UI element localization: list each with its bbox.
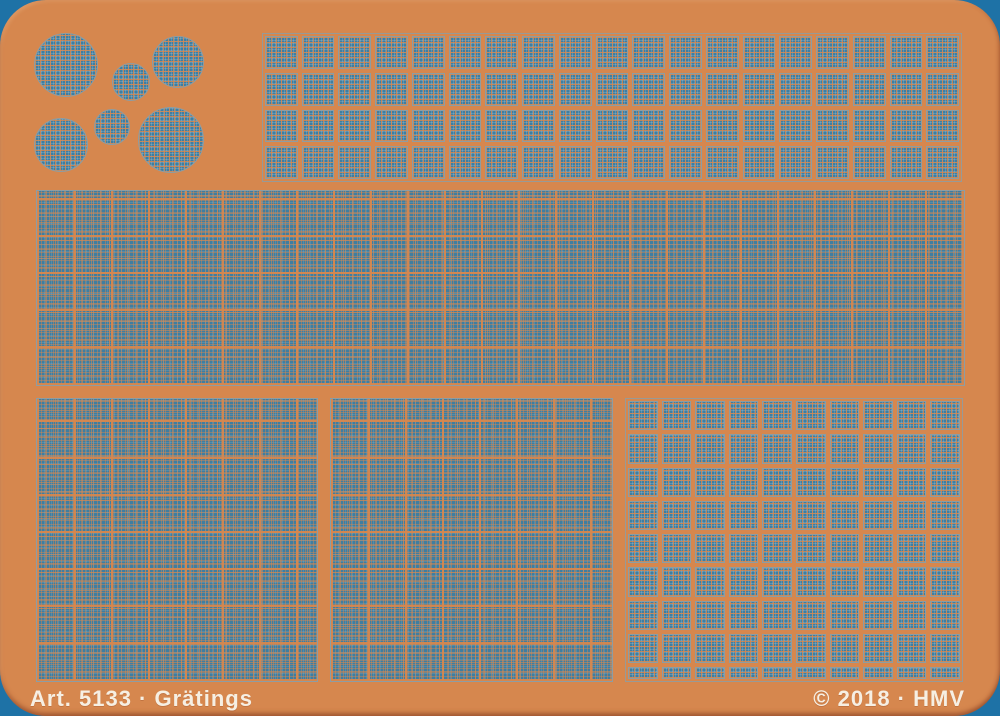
grating-cell xyxy=(816,73,849,106)
grating-cell xyxy=(662,634,692,663)
grating-cell xyxy=(796,534,826,563)
grating-cell xyxy=(863,601,893,630)
grating-cell xyxy=(897,634,927,663)
grating-cell xyxy=(662,667,692,679)
grating-cell xyxy=(762,401,792,430)
grating-cell xyxy=(762,501,792,530)
grating-cell xyxy=(930,667,960,679)
grating-cell xyxy=(830,667,860,679)
grating-cell xyxy=(302,110,335,143)
grating-cell xyxy=(596,110,629,143)
grating-cell xyxy=(853,73,886,106)
grating-cell xyxy=(863,434,893,463)
grating-cell xyxy=(695,667,725,679)
grating-cell xyxy=(890,110,923,143)
grating-cell xyxy=(662,567,692,596)
grating-cell xyxy=(695,501,725,530)
grating-cell xyxy=(662,401,692,430)
grating-cell xyxy=(779,73,812,106)
circular-grating xyxy=(138,107,204,173)
grating-cell xyxy=(816,110,849,143)
grating-cell xyxy=(522,36,555,69)
grating-cell xyxy=(816,146,849,179)
grating-cell xyxy=(338,36,371,69)
circular-grating xyxy=(34,118,88,172)
grating-cell xyxy=(853,146,886,179)
grating-cell xyxy=(375,36,408,69)
grating-cell xyxy=(669,36,702,69)
grating-cell xyxy=(522,73,555,106)
grating-cell xyxy=(302,146,335,179)
grating-cell xyxy=(669,110,702,143)
grating-cell xyxy=(762,634,792,663)
grating-cell xyxy=(706,36,739,69)
grating-cell xyxy=(695,534,725,563)
grating-cell xyxy=(662,434,692,463)
grating-cell xyxy=(412,36,445,69)
grating-cell xyxy=(559,36,592,69)
grating-cell xyxy=(762,534,792,563)
grating-cell xyxy=(897,501,927,530)
grating-cell xyxy=(890,73,923,106)
grating-cell xyxy=(695,601,725,630)
article-number-label: Art. 5133 · Grätings xyxy=(30,686,253,712)
grating-cell xyxy=(930,601,960,630)
grating-cell xyxy=(662,601,692,630)
grating-cell xyxy=(863,534,893,563)
grating-cell xyxy=(522,146,555,179)
grating-cell xyxy=(897,401,927,430)
grating-cell xyxy=(375,73,408,106)
grating-cell xyxy=(830,634,860,663)
grating-cell xyxy=(628,567,658,596)
grating-cell xyxy=(762,667,792,679)
grating-cell xyxy=(695,567,725,596)
grating-cell xyxy=(596,73,629,106)
grating-cell xyxy=(796,468,826,497)
grating-cell xyxy=(863,501,893,530)
grating-cell xyxy=(449,110,482,143)
grating-cell xyxy=(853,36,886,69)
grating-cell xyxy=(449,73,482,106)
grating-cell xyxy=(375,110,408,143)
grating-cell xyxy=(897,468,927,497)
circular-grating xyxy=(94,109,130,145)
grating-cell xyxy=(729,634,759,663)
grating-cell xyxy=(559,73,592,106)
circular-grating xyxy=(112,63,150,101)
grating-cell xyxy=(632,73,665,106)
grating-cell xyxy=(338,73,371,106)
grating-cell xyxy=(485,146,518,179)
grating-cell xyxy=(412,73,445,106)
grating-cell xyxy=(628,634,658,663)
grating-cell xyxy=(338,110,371,143)
grating-cell xyxy=(796,401,826,430)
grating-cell xyxy=(930,468,960,497)
grating-cell xyxy=(897,601,927,630)
grating-cell xyxy=(762,468,792,497)
etch-fret-sheet: Art. 5133 · Grätings © 2018 · HMV xyxy=(0,0,1000,716)
grating-cell xyxy=(897,667,927,679)
grating-cell xyxy=(796,667,826,679)
grating-cell xyxy=(930,501,960,530)
grating-cell xyxy=(706,73,739,106)
grating-cell xyxy=(897,434,927,463)
grating-cell xyxy=(796,634,826,663)
bottom-right-grating-grid xyxy=(625,398,963,682)
grating-cell xyxy=(796,567,826,596)
grating-cell xyxy=(449,36,482,69)
grating-cell xyxy=(302,36,335,69)
grating-cell xyxy=(796,601,826,630)
grating-cell xyxy=(926,110,959,143)
grating-cell xyxy=(632,110,665,143)
grating-cell xyxy=(743,73,776,106)
grating-cell xyxy=(926,146,959,179)
grating-cell xyxy=(830,434,860,463)
copyright-label: © 2018 · HMV xyxy=(813,686,965,712)
photoetch-sheet-image: Art. 5133 · Grätings © 2018 · HMV xyxy=(0,0,1000,716)
grating-cell xyxy=(662,501,692,530)
grating-cell xyxy=(729,501,759,530)
grating-cell xyxy=(743,36,776,69)
grating-cell xyxy=(897,534,927,563)
grating-cell xyxy=(695,434,725,463)
grating-cell xyxy=(669,146,702,179)
grating-cell xyxy=(302,73,335,106)
grating-cell xyxy=(559,110,592,143)
grating-cell xyxy=(522,110,555,143)
grating-cell xyxy=(930,567,960,596)
grating-cell xyxy=(559,146,592,179)
grating-cell xyxy=(628,601,658,630)
grating-cell xyxy=(662,468,692,497)
grating-cell xyxy=(729,667,759,679)
grating-cell xyxy=(449,146,482,179)
circular-grating xyxy=(152,36,204,88)
grating-cell xyxy=(729,534,759,563)
grating-cell xyxy=(706,146,739,179)
grating-cell xyxy=(338,146,371,179)
grating-cell xyxy=(779,146,812,179)
grating-cell xyxy=(596,146,629,179)
grating-cell xyxy=(863,468,893,497)
grating-cell xyxy=(412,110,445,143)
grating-cell xyxy=(628,468,658,497)
bottom-left-grating-panel xyxy=(36,398,318,682)
grating-cell xyxy=(816,36,849,69)
grating-cell xyxy=(628,667,658,679)
grating-cell xyxy=(743,110,776,143)
grating-cell xyxy=(265,36,298,69)
grating-cell xyxy=(662,534,692,563)
grating-cell xyxy=(779,110,812,143)
grating-cell xyxy=(628,501,658,530)
grating-cell xyxy=(743,146,776,179)
grating-cell xyxy=(632,146,665,179)
grating-cell xyxy=(830,468,860,497)
grating-cell xyxy=(628,434,658,463)
grating-cell xyxy=(729,567,759,596)
grating-cell xyxy=(830,401,860,430)
grating-cell xyxy=(375,146,408,179)
grating-cell xyxy=(930,534,960,563)
bottom-middle-grating-panel xyxy=(330,398,613,682)
grating-cell xyxy=(632,36,665,69)
grating-cell xyxy=(669,73,702,106)
grating-cell xyxy=(729,601,759,630)
grating-cell xyxy=(485,110,518,143)
grating-cell xyxy=(628,534,658,563)
grating-cell xyxy=(926,73,959,106)
grating-cell xyxy=(890,36,923,69)
top-grating-strip xyxy=(262,33,962,182)
grating-cell xyxy=(265,146,298,179)
grating-cell xyxy=(265,110,298,143)
grating-cell xyxy=(863,634,893,663)
grating-cell xyxy=(412,146,445,179)
grating-cell xyxy=(762,434,792,463)
grating-cell xyxy=(853,110,886,143)
grating-cell xyxy=(628,401,658,430)
grating-cell xyxy=(830,601,860,630)
grating-cell xyxy=(890,146,923,179)
circular-grating xyxy=(34,33,98,97)
grating-cell xyxy=(596,36,629,69)
grating-cell xyxy=(695,634,725,663)
grating-cell xyxy=(762,567,792,596)
grating-cell xyxy=(729,468,759,497)
grating-cell xyxy=(695,401,725,430)
grating-cell xyxy=(265,73,298,106)
grating-cell xyxy=(729,401,759,430)
grating-cell xyxy=(830,567,860,596)
grating-cell xyxy=(729,434,759,463)
grating-cell xyxy=(830,501,860,530)
grating-cell xyxy=(762,601,792,630)
grating-cell xyxy=(863,401,893,430)
grating-cell xyxy=(830,534,860,563)
grating-cell xyxy=(796,501,826,530)
large-grating-panel xyxy=(36,190,965,386)
grating-cell xyxy=(930,401,960,430)
grating-cell xyxy=(485,73,518,106)
grating-cell xyxy=(863,567,893,596)
grating-cell xyxy=(897,567,927,596)
grating-cell xyxy=(706,110,739,143)
grating-cell xyxy=(695,468,725,497)
grating-cell xyxy=(930,434,960,463)
grating-cell xyxy=(796,434,826,463)
grating-cell xyxy=(863,667,893,679)
grating-cell xyxy=(926,36,959,69)
grating-cell xyxy=(779,36,812,69)
grating-cell xyxy=(485,36,518,69)
grating-cell xyxy=(930,634,960,663)
